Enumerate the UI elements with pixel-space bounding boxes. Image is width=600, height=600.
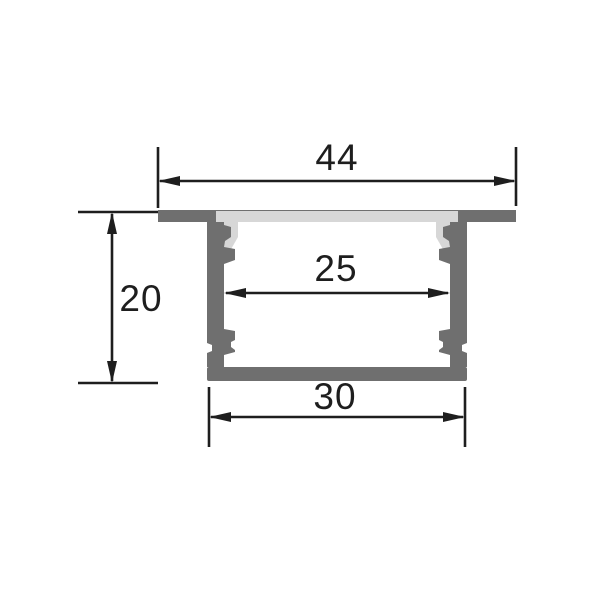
dimension-label-top-width: 44: [315, 137, 358, 178]
dimension-top-width-marks: 44: [158, 137, 516, 186]
dimension-label-height: 20: [119, 278, 162, 319]
dimension-inner-width: 25: [224, 248, 450, 298]
diffuser-cover: [216, 211, 458, 251]
profile-cross-section-drawing: 44 20 25: [0, 0, 600, 600]
dimension-height: 20: [78, 212, 163, 383]
arrowhead-right-icon: [428, 288, 450, 298]
arrowhead-down-icon: [107, 361, 117, 383]
arrowhead-left-icon: [224, 288, 246, 298]
dimension-label-bottom-width: 30: [313, 376, 356, 417]
dimension-bottom-width-marks: 30: [209, 376, 465, 422]
diffuser-strip: [216, 211, 458, 222]
arrowhead-right-icon: [443, 412, 465, 422]
arrowhead-left-icon: [158, 176, 180, 186]
dimension-bottom-width: 30: [209, 376, 465, 447]
dimension-top-width: 44: [158, 137, 516, 208]
arrowhead-left-icon: [209, 412, 231, 422]
arrowhead-right-icon: [494, 176, 516, 186]
technical-drawing-canvas: 44 20 25: [0, 0, 600, 600]
dimension-label-inner-width: 25: [314, 248, 357, 289]
arrowhead-up-icon: [107, 212, 117, 234]
dimension-inner-width-marks: 25: [224, 248, 450, 298]
dimension-height-marks: 20: [107, 212, 163, 383]
